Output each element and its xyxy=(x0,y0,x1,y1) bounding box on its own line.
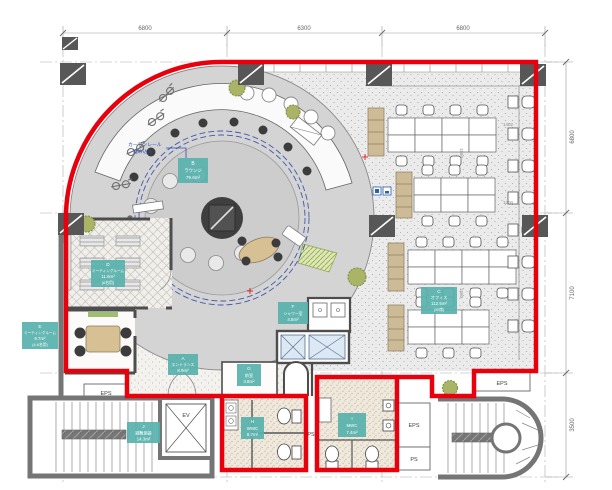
room-a-area: 8.9m² xyxy=(177,368,189,373)
curtain-note-line2: 埋め込み xyxy=(133,148,152,155)
room-c-name: オフィス xyxy=(431,295,448,300)
elevator-shaft xyxy=(309,335,345,359)
room-e-area: 9.7m² xyxy=(34,336,46,341)
furniture-dim: 1200 xyxy=(503,200,514,205)
dim-right-3: 3500 xyxy=(570,418,576,432)
room-label-a: A エントランス 8.9m² xyxy=(168,354,198,375)
meeting-room-e xyxy=(65,310,135,373)
column-icon xyxy=(369,215,395,237)
elevator-car xyxy=(160,398,212,458)
room-label-g: G 前室 3.8m² xyxy=(237,364,261,386)
stair-inner-curve xyxy=(492,424,520,452)
furniture-dim: 1550 xyxy=(459,148,464,159)
monitor-board xyxy=(88,312,118,317)
column-icon xyxy=(58,213,84,235)
eps-label: EPS xyxy=(496,381,507,387)
room-h-letter: H xyxy=(251,419,255,425)
toilet-icon xyxy=(366,446,379,469)
toilet-icon xyxy=(326,446,339,469)
column-icon xyxy=(366,64,392,86)
furniture-dim: 1550 xyxy=(459,288,464,299)
room-j-name: 避難施設 xyxy=(135,430,153,437)
plant-icon xyxy=(443,381,458,396)
room-c-capacity: (30席) xyxy=(434,307,445,312)
elevator-shaft xyxy=(281,335,305,359)
stair-landing xyxy=(62,430,126,439)
dim-top-3: 6800 xyxy=(456,26,470,32)
column-icon xyxy=(60,63,86,85)
urinal-icon xyxy=(383,400,394,411)
room-d-area: 11.6m² xyxy=(101,274,115,279)
column-icon xyxy=(238,63,264,85)
room-label-j: J 避難施設 14.3m² xyxy=(127,422,160,443)
dim-right-2: 7100 xyxy=(570,286,576,300)
plant-icon xyxy=(348,268,366,286)
room-d-capacity: (6名用) xyxy=(102,280,115,285)
room-h-name: WWC xyxy=(247,426,258,431)
room-j-area: 14.3m² xyxy=(137,437,151,442)
room-b-area: 79.6m² xyxy=(186,175,201,180)
floor-plan-canvas: 6800 6300 6800 6800 7100 3500 xyxy=(0,0,612,490)
room-g-name: 前室 xyxy=(245,372,253,379)
room-i-area: 7.4m² xyxy=(346,430,358,435)
room-i-name: MWC xyxy=(347,423,358,428)
furniture-dim: 1402 xyxy=(503,122,514,127)
column-icon xyxy=(62,37,78,50)
room-label-i: I MWC 7.4m² xyxy=(338,413,366,437)
stair-block-right xyxy=(438,399,541,477)
column-icon xyxy=(520,64,546,86)
room-e-name: ミーティングルーム xyxy=(24,330,56,335)
eps-label: EPS xyxy=(100,391,111,397)
room-h-area: 8.7m² xyxy=(247,432,259,437)
room-b-name: ラウンジ xyxy=(184,167,202,174)
room-f-area: 4.8m² xyxy=(287,317,299,322)
urinal-icon xyxy=(383,420,394,431)
room-d-letter: D xyxy=(106,262,110,268)
ps-label: PS xyxy=(307,432,315,438)
room-f-name: シャワー室 xyxy=(284,311,303,316)
room-a-name: エントランス xyxy=(172,362,195,367)
room-e-letter: E xyxy=(38,324,41,330)
room-e-capacity: (4-6名用) xyxy=(32,342,48,347)
floor-plan-drawing: 6800 6300 6800 6800 7100 3500 xyxy=(0,0,612,490)
room-g-area: 3.8m² xyxy=(243,379,255,384)
room-g-letter: G xyxy=(247,366,251,372)
room-c-area: 112.5m² xyxy=(431,301,447,306)
room-label-b: B ラウンジ 79.6m² xyxy=(178,158,208,183)
dim-top-2: 6300 xyxy=(297,26,311,32)
room-label-h: H WWC 8.7m² xyxy=(241,417,264,439)
room-label-c: C オフィス 112.5m² (30席) xyxy=(421,287,457,314)
room-label-e: E ミーティングルーム 9.7m² (4-6名用) xyxy=(22,322,58,349)
room-i-letter: I xyxy=(351,416,352,422)
dim-top-1: 6800 xyxy=(138,26,152,32)
ps-label: PS xyxy=(410,457,418,463)
room-label-d: D ミーティングルーム 11.6m² (6名用) xyxy=(91,260,125,287)
eps-label: EPS xyxy=(408,423,419,429)
meeting-table xyxy=(86,326,120,352)
ev-label: EV xyxy=(182,413,190,419)
curtain-note-line1: カーテンレール xyxy=(128,142,162,148)
center-column xyxy=(209,205,235,231)
room-label-f: F シャワー室 4.8m² xyxy=(278,302,308,324)
dim-right-1: 6800 xyxy=(570,130,576,144)
room-f-letter: F xyxy=(292,304,295,310)
plant-icon xyxy=(286,105,300,119)
arch-doorway xyxy=(284,362,308,396)
room-d-name: ミーティングルーム xyxy=(92,268,124,273)
